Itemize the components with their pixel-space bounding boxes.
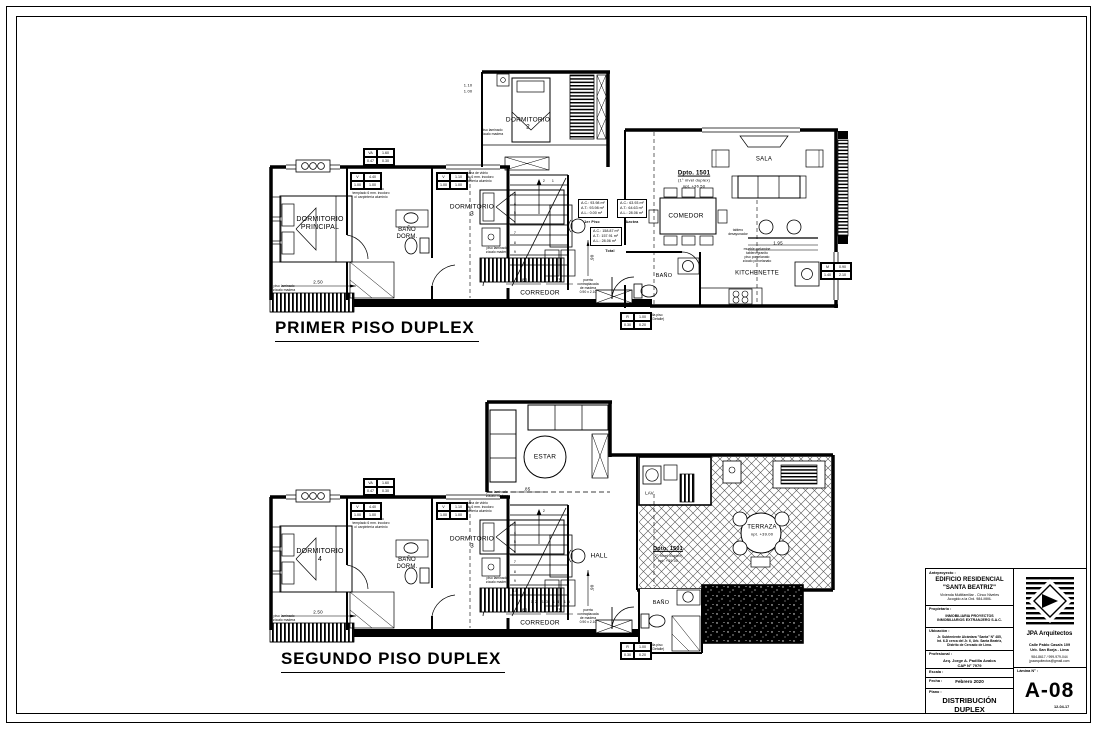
fecha-value: Febrero 2020 [926,679,1013,685]
room-label-lav: LAV. [645,490,655,495]
stair-num-column-p1: 3 4 5 6 7 8 9 [514,190,516,258]
area-table-1er-piso: A.C.: 93.98 m²A.T.: 93.98 m²A.L.: 0.00 m… [578,199,608,218]
dim-90-p1: .90 [589,255,594,262]
room-label-corredor-p1: CORREDOR [520,289,560,296]
lamina-label: Lámina N° : [1017,669,1038,673]
dim-75-p1: .75 [555,277,562,282]
room-label-dormitorio-2: DORMITORIO 2 [506,117,550,132]
firm-phone: 984-8617 / 999-979-044 jpaarquitectos@gm… [1013,655,1086,664]
tb-rule-6 [926,688,1013,689]
project-name: EDIFICIO RESIDENCIAL "SANTA BEATRIZ" [926,577,1013,592]
dim-100: 1.00 [464,90,473,95]
propietario-label: Propietario : [929,607,951,611]
room-label-terraza: TERRAZA [747,525,776,532]
window-tag-v1-p2: V1.101.001.00 [436,502,468,520]
note-kitchen-floor: piso porcelanato zócalo porcelanato [743,256,771,264]
firm-name: JPA Arquitectos [1013,631,1086,639]
dim-110: 1.10 [464,84,473,89]
tb-rule-5 [926,677,1013,678]
window-tag-va-p1: VA1.600.470.30 [363,148,395,166]
window-tag-va-p2: VA1.600.470.30 [363,478,395,496]
unit-level-p1: (1° nivel duplex) [678,179,710,184]
window-tag-v1-p1: V1.101.001.00 [436,172,468,190]
tb-rule-1 [926,605,1013,606]
stair-num-2-p2: 2 [543,509,545,513]
ubicacion-label: Ubicación : [929,629,949,633]
dim-80-p2: .80 [521,607,528,612]
room-label-dormitorio-3-p1: DORMITORIO 3 [450,204,494,219]
plano-label: Plano : [929,690,942,694]
window-tag-v2-p1: V4.401.001.00 [350,172,382,190]
project-desc: Vivienda Multifamiliar - Cinco Niveles A… [926,593,1013,602]
propietario-value: INMOBILIARIA PROYECTOS INMOBILIARIOS EXT… [926,614,1013,623]
note-door-p2: puerta contraplacada de madera 0.90 x 2.… [577,609,598,625]
tb-rule-3 [926,650,1013,651]
dim-85: .85 [524,486,531,491]
escala-label: Escala : [929,670,943,674]
area-caption-1er-piso: 1er Piso [584,220,600,224]
room-label-dormitorio-4: DORMITORIO 4 [296,548,343,564]
note-floor-dorm4: piso laminado zócalo madera [273,615,295,623]
dim-80-p1: .80 [521,277,528,282]
plan1-title: PRIMER PISO DUPLEX [275,318,479,342]
room-label-comedor: COMEDOR [668,212,703,219]
unit-npt-p1: npt. +36.50 [683,185,705,190]
room-label-sala: SALA [756,157,772,164]
note-floor-dorm3-p2: piso laminado zócalo madera [486,577,508,585]
tb-rule-2 [926,627,1013,628]
unit-level-p2: (2° nivel duplex) [653,554,682,558]
grille-tag-r-p2: R1.000.300.20 [620,642,652,660]
profesional-label: Profesional : [929,652,952,656]
drawing-sheet: PRIMER PISO DUPLEX SEGUNDO PISO DUPLEX D… [0,0,1097,729]
terraza-npt: npt. +39.00 [751,533,773,538]
unit-label-p1: Dpto. 1501 [678,171,710,178]
profesional-value: Arq. Jorge A. Padilla Avalos CAP N° 7979 [926,658,1013,668]
note-bar: tablero desayunador [728,229,748,237]
room-label-dormitorio-3-p2: DORMITORIO 3 [450,536,494,551]
grille-tag-r-p1: R1.000.300.20 [620,312,652,330]
ubicacion-value: Jr. Subteniente Alcántara "Santa" N° 485… [926,635,1013,647]
room-label-corredor-p2: CORREDOR [520,619,560,626]
note-floor-dorm2: piso laminado zócalo madera [481,129,503,137]
room-label-bano-p1: BAÑO [656,273,672,279]
lamina-number: A-08 [1013,677,1086,704]
area-table-azotea: A.C.: 63.93 m²A.T.: 64.63 m²A.L.: 28.06 … [617,199,647,218]
area-caption-azotea: Azotea [626,220,639,224]
dim-75-p2: .75 [555,607,562,612]
lamina-date: 12-04-17 [1054,705,1069,709]
room-label-kitchenette: KITCHENETTE [735,271,779,278]
firm-address: Calle Pablo Casals 109 Urb. San Borja - … [1013,643,1086,653]
plan2-title: SEGUNDO PISO DUPLEX [281,649,505,673]
note-floor-principal: piso laminado zócalo madera [273,285,295,293]
dim-250-p1: 2.50 [313,279,323,284]
title-block: Anteproyecto : EDIFICIO RESIDENCIAL "SAN… [925,568,1087,714]
room-label-estar: ESTAR [534,453,556,460]
plano-value: DISTRIBUCIÓN DUPLEX [926,696,1013,715]
room-label-bano-dorm-1: BAÑO DORM. [397,227,418,241]
stair-num-column-p2: 3 4 5 6 7 8 9 10 [513,519,517,597]
dim-195: 1.95 [773,240,783,245]
room-label-dormitorio-principal: DORMITORIO PRINCIPAL [296,216,343,232]
tb-rule-4 [926,668,1013,669]
dim-250-p2: 2.50 [313,609,323,614]
window-tag-v2-p2: V4.401.001.00 [350,502,382,520]
stair-num-1-p1: 1 [552,179,554,183]
note-floor-dorm3-p1: piso laminado zócalo madera [486,247,508,255]
door-tag-m-p1: M0.901.402.10 [820,262,852,280]
area-table-total: A.C.: 158.87 m²A.T.: 157.91 m²A.L.: 28.0… [590,227,622,246]
note-floor-estar: piso laminado zócalo madera [486,491,508,499]
dim-90-p2: .90 [589,585,594,592]
stair-num-2-p1: 2 [543,179,545,183]
unit-npt-p2: npt. +39.00 [658,559,678,563]
note-door-p1: puerta contraplacada de madera 0.90 x 2.… [577,279,598,295]
stair-num-row-p2: 11 12 13 14 15 [520,600,572,604]
room-label-hall: HALL [590,552,607,559]
room-label-bano-dorm-2: BAÑO DORM. [397,557,418,571]
firm-logo [1022,573,1078,629]
anteproyecto-label: Anteproyecto : [929,571,956,575]
area-caption-total: Total [605,249,614,253]
unit-label-p2: Dpto. 1501 [653,546,683,552]
tb-rule-lamina [1013,667,1086,668]
room-label-bano-p2: BAÑO [653,600,669,606]
